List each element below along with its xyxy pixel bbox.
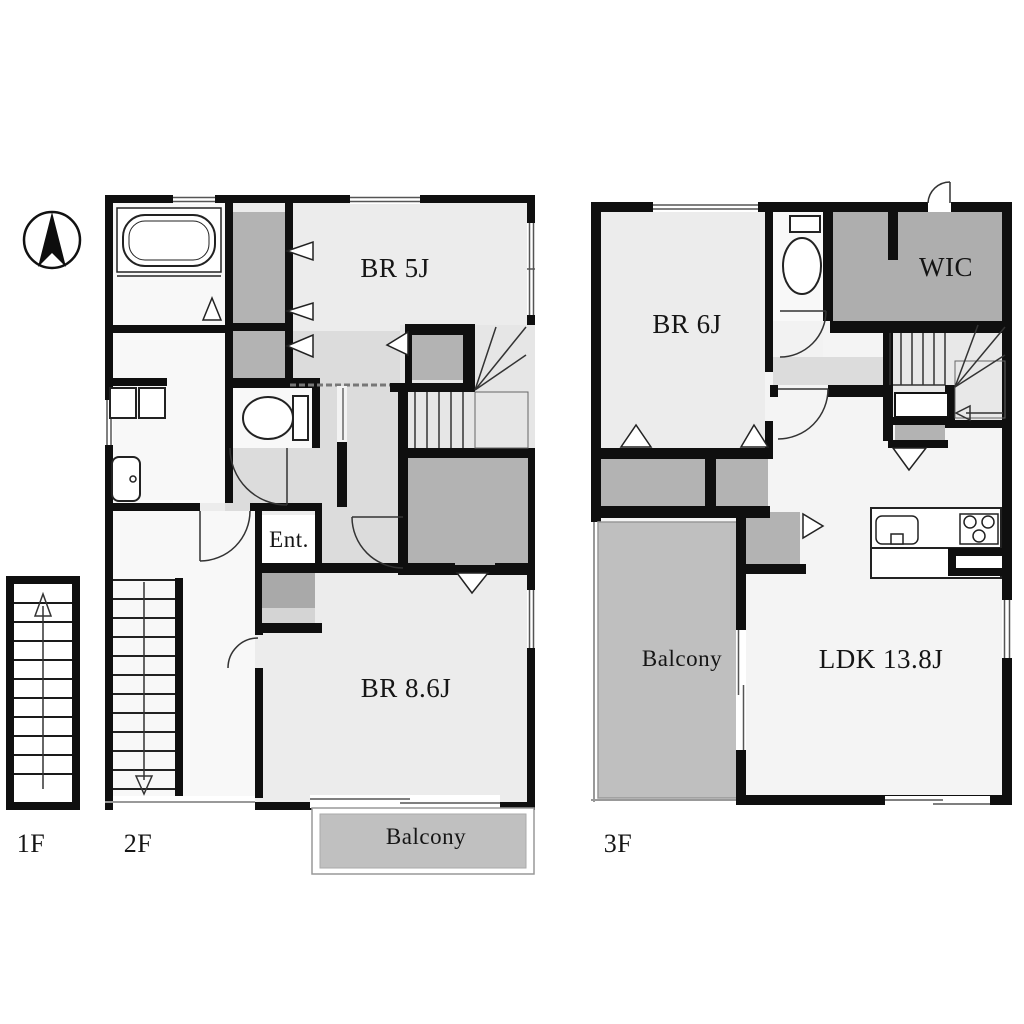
closet-right <box>716 459 768 506</box>
kitchen-counter <box>871 508 1012 578</box>
toilet-icon-2f <box>243 396 308 440</box>
entry-hall-floor <box>113 511 255 798</box>
room-label-ldk: LDK 13.8J <box>819 644 944 675</box>
room-label-br6: BR 6J <box>652 309 721 340</box>
closet-column-lower <box>232 331 287 378</box>
bathtub-icon <box>117 208 221 276</box>
room-label-ent: Ent. <box>269 527 309 553</box>
stove-icon <box>960 514 998 544</box>
ldk-closet <box>746 512 800 564</box>
floor-label-3f: 3F <box>604 829 632 859</box>
compass-north-icon <box>16 203 88 275</box>
room-label-br5: BR 5J <box>360 253 429 284</box>
stairs-1f <box>4 574 84 814</box>
room-label-wic: WIC <box>919 252 973 283</box>
floor-label-1f: 1F <box>17 829 45 859</box>
hallway-floor-3f <box>773 357 883 385</box>
floor-label-2f: 2F <box>124 829 152 859</box>
wic-floor <box>833 212 1002 321</box>
sink-icon <box>112 457 140 501</box>
room-label-br86: BR 8.6J <box>361 673 452 704</box>
floorplan-2f <box>100 190 540 880</box>
room-label-balcony-3f: Balcony <box>642 646 722 672</box>
room-label-balcony-2f: Balcony <box>386 824 466 850</box>
shoe-cabinet <box>260 570 315 608</box>
closet-left <box>601 459 705 506</box>
storage-room <box>408 458 528 565</box>
stair-closet <box>412 335 463 380</box>
closet-column-upper <box>232 212 287 323</box>
kitchen-sink-icon <box>876 516 918 544</box>
under-stair-closet <box>895 393 948 417</box>
floorplan-canvas: BR 5J Ent. BR 8.6J Balcony BR 6J WIC Bal… <box>0 0 1024 1024</box>
